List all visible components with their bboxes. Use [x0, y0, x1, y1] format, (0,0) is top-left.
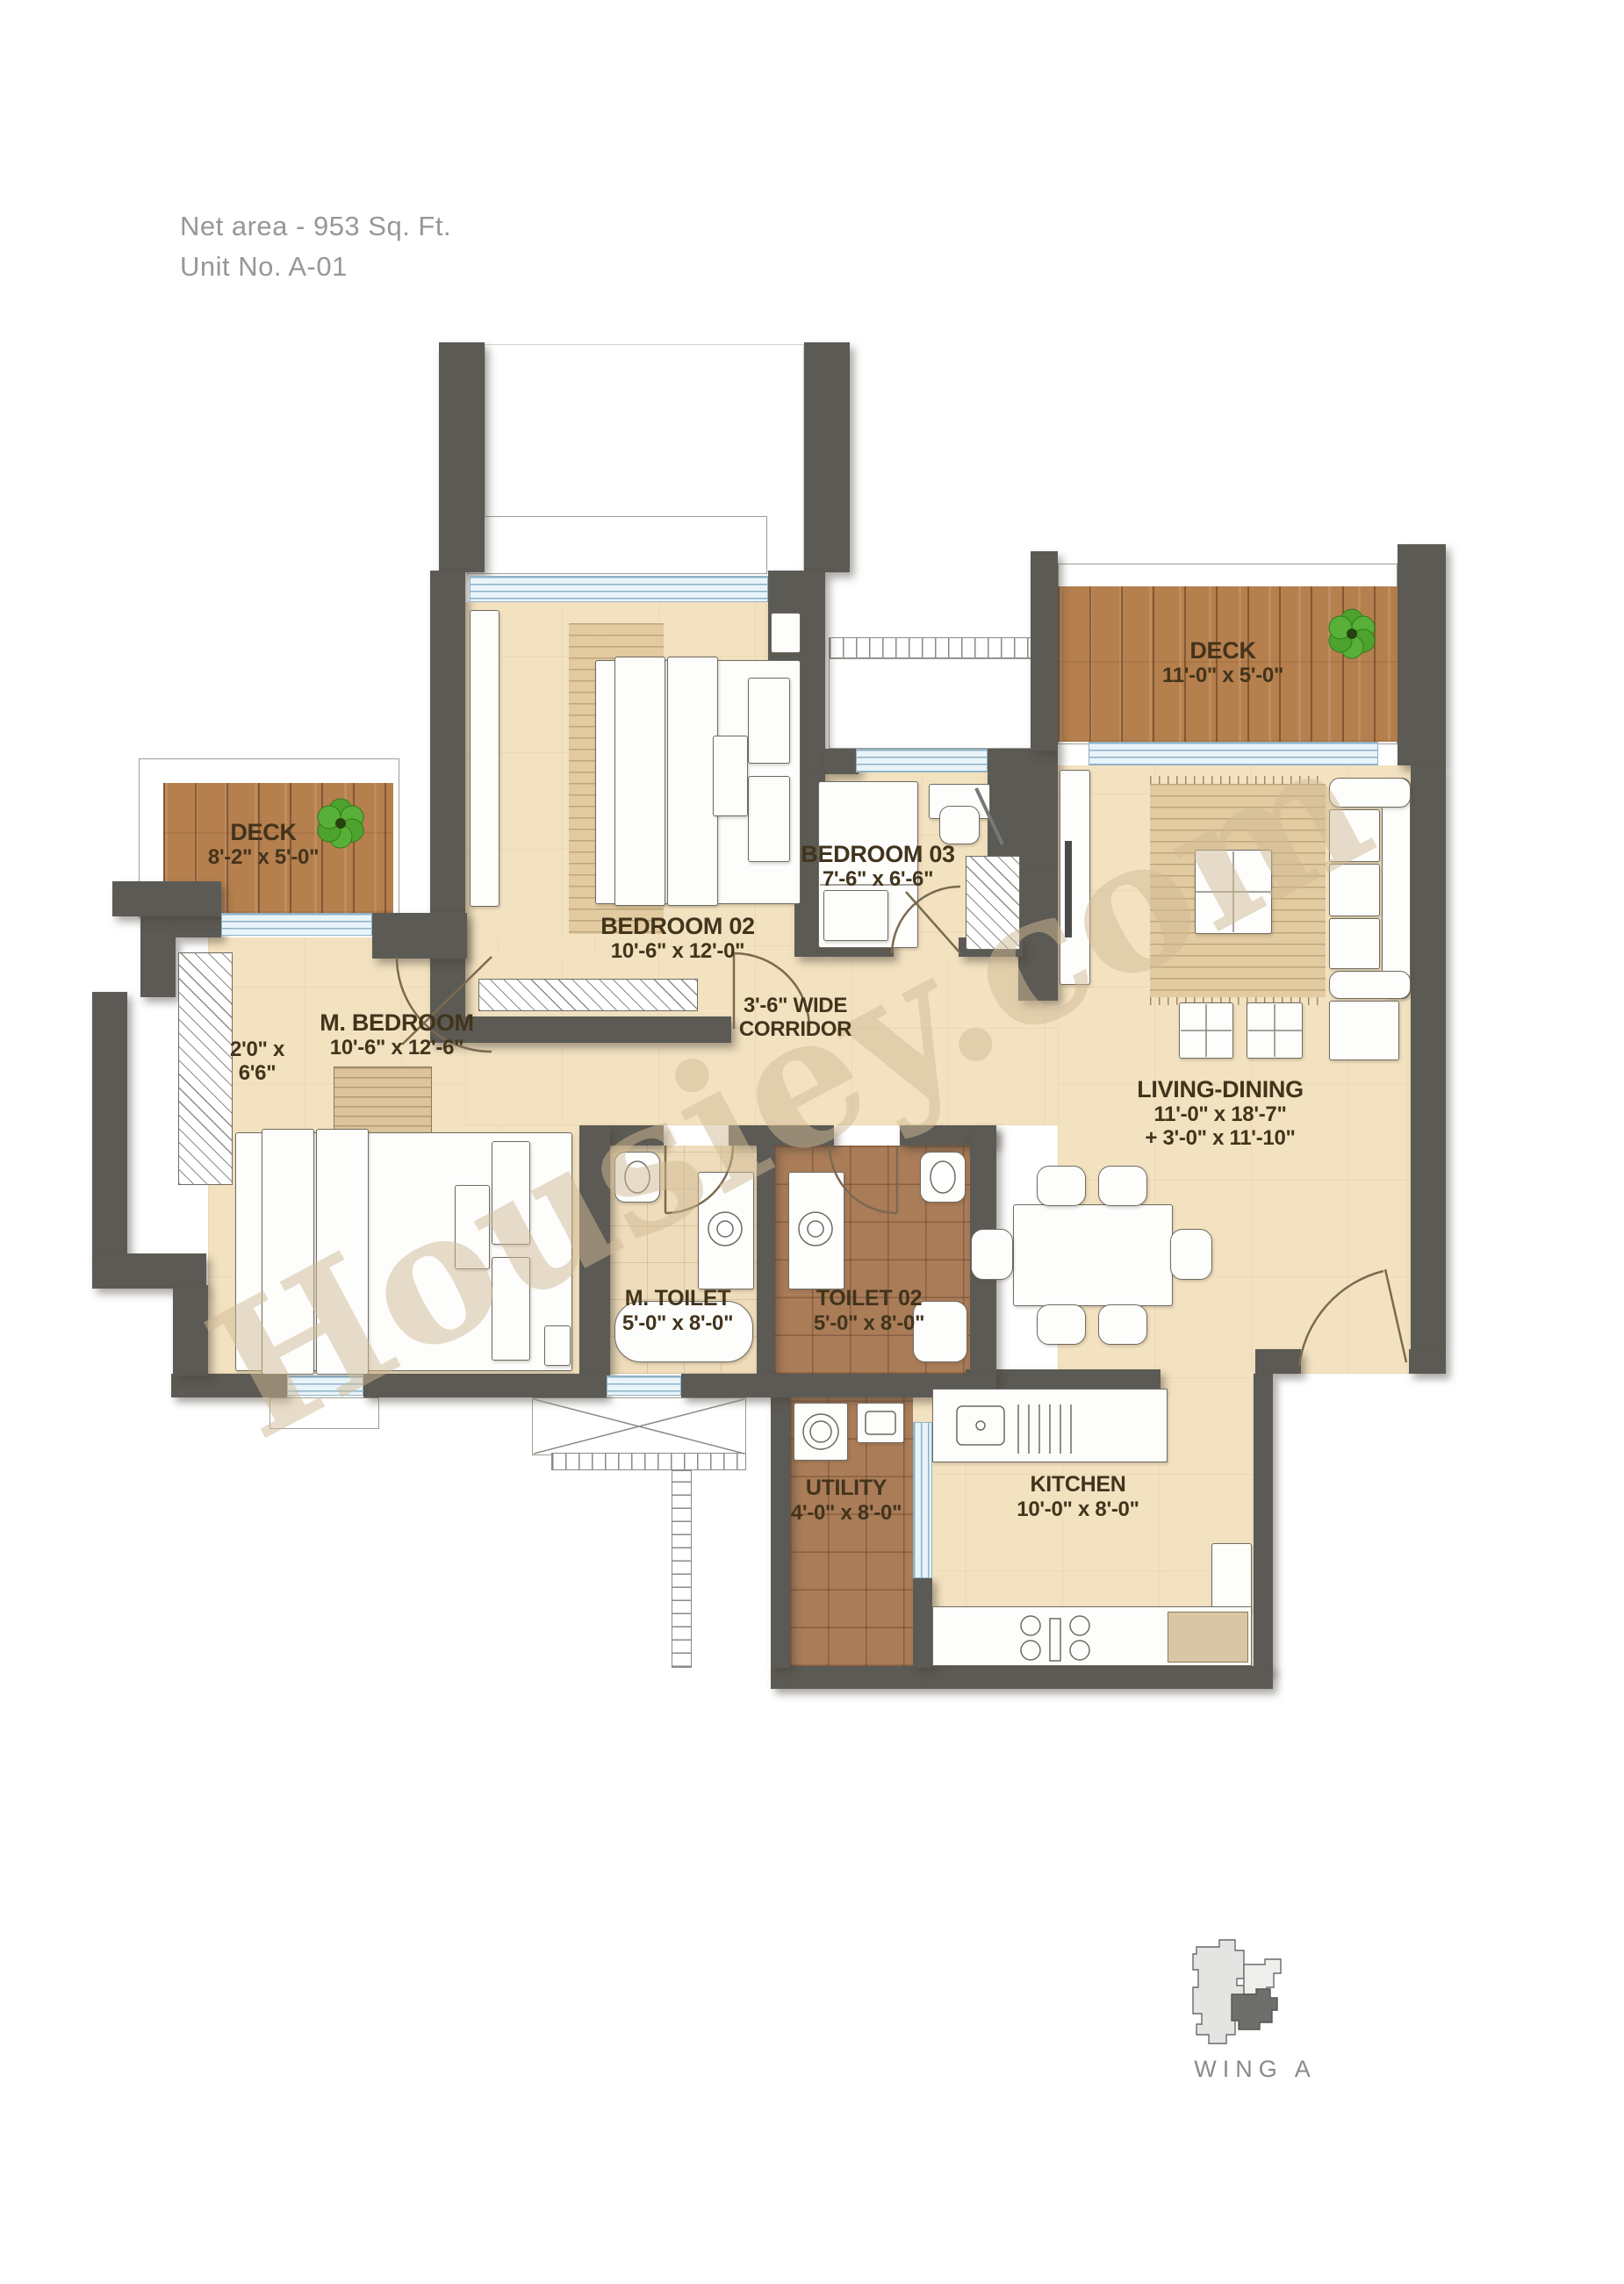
room-name: BEDROOM 02: [600, 913, 755, 939]
room-dims: + 3'-0" x 11'-10": [1137, 1126, 1304, 1150]
room-name: LIVING-DINING: [1137, 1076, 1304, 1102]
room-dims: 5'-0" x 8'-0": [814, 1311, 924, 1335]
wall-segment: [92, 992, 127, 1257]
bedroom-03-ledge: [829, 658, 1034, 749]
dining-chair: [971, 1229, 1013, 1280]
room-dims: 5'-0" x 8'-0": [622, 1311, 733, 1335]
room-label-toilet-02: TOILET 02 5'-0" x 8'-0": [814, 1285, 924, 1335]
wall-segment: [439, 342, 485, 572]
pillow: [455, 1185, 490, 1269]
wall-segment: [176, 913, 221, 937]
kitchen-counter: [932, 1389, 1168, 1462]
service-ticks-v: [672, 1470, 692, 1668]
room-label-master-toilet: M. TOILET 5'-0" x 8'-0": [622, 1285, 733, 1335]
wall-segment: [1409, 1349, 1446, 1374]
wall-segment: [173, 1285, 208, 1375]
wall-segment: [140, 913, 176, 997]
basin-counter: [698, 1172, 754, 1289]
room-dims: 10'-6" x 12'-6": [320, 1036, 474, 1059]
wall-segment: [606, 1125, 664, 1146]
sofa-cushion: [1329, 809, 1380, 862]
basin-counter: [788, 1172, 844, 1289]
kitchen-platform: [1168, 1612, 1248, 1663]
window-master-bedroom: [221, 913, 372, 936]
wall-segment: [579, 1125, 610, 1375]
wall-segment: [430, 571, 465, 1043]
switchboard: [544, 1325, 571, 1366]
niche-dims-line1: 2'0" x: [230, 1038, 284, 1061]
side-table: [1329, 1001, 1399, 1060]
pouf: [1179, 1002, 1233, 1059]
room-label-master-bedroom: M. BEDROOM 10'-6" x 12'-6": [320, 1009, 474, 1059]
label-niche-dims: 2'0" x 6'6": [230, 1038, 284, 1085]
switchboard: [771, 613, 801, 653]
wall-segment: [171, 1374, 287, 1397]
pillow: [492, 1141, 530, 1245]
unit-no-text: Unit No. A-01: [180, 251, 348, 283]
wall-segment: [1411, 765, 1446, 1349]
washing-machine: [794, 1403, 848, 1461]
room-dims: 10'-6" x 12'-0": [600, 939, 755, 963]
wall-segment: [1398, 544, 1446, 765]
keyplan-tower: [1193, 1940, 1244, 2043]
wardrobe: [470, 610, 499, 907]
wall-segment: [465, 1016, 731, 1043]
sofa-cushion: [1329, 864, 1380, 916]
tv-icon: [1065, 841, 1072, 937]
duvet: [667, 657, 718, 906]
service-ledge: [532, 1397, 746, 1455]
wc: [920, 1152, 966, 1203]
floorplan-page: Net area - 953 Sq. Ft. Unit No. A-01: [0, 0, 1624, 2284]
room-name: M. BEDROOM: [320, 1009, 474, 1036]
room-name: TOILET 02: [814, 1285, 924, 1311]
corridor-line1: 3'-6" WIDE: [739, 994, 852, 1017]
pillow: [713, 736, 748, 816]
duvet: [316, 1129, 369, 1375]
wall-segment: [1018, 871, 1058, 1001]
wall-segment: [757, 1146, 774, 1375]
window-bedroom-02: [470, 576, 768, 602]
room-dims: 11'-0" x 5'-0": [1162, 664, 1283, 687]
dining-chair: [1098, 1166, 1147, 1206]
planter-box: [269, 1397, 379, 1429]
keyplan-unit-highlight: [1232, 1989, 1277, 2029]
pillow: [492, 1257, 530, 1361]
room-label-deck-right: DECK 11'-0" x 5'-0": [1162, 637, 1283, 687]
dining-table: [1013, 1204, 1173, 1306]
pillow: [823, 890, 888, 941]
room-label-living-dining: LIVING-DINING 11'-0" x 18'-7" + 3'-0" x …: [1137, 1076, 1304, 1150]
wall-segment: [825, 749, 859, 774]
bedroom-02-ledge: [467, 516, 767, 574]
wall-segment: [913, 1577, 932, 1668]
keyplan-icon: [1182, 1936, 1283, 2049]
wall-segment: [771, 1666, 1273, 1689]
wall-segment: [363, 1374, 607, 1397]
room-label-kitchen: KITCHEN 10'-0" x 8'-0": [1017, 1471, 1139, 1521]
wall-segment: [771, 1396, 790, 1668]
sofa-cushion: [1329, 918, 1380, 969]
sofa-armrest: [1329, 971, 1411, 999]
room-name: KITCHEN: [1017, 1471, 1139, 1498]
window-bedroom-03: [856, 749, 988, 772]
room-dims: 7'-6" x 6'-6": [801, 867, 955, 891]
wall-segment: [804, 342, 850, 572]
wall-segment: [1254, 1374, 1273, 1672]
room-name: DECK: [1162, 637, 1283, 664]
sofa-armrest: [1329, 778, 1411, 808]
wall-segment: [1031, 551, 1058, 751]
dining-chair: [1037, 1304, 1086, 1345]
room-dims: 11'-0" x 18'-7": [1137, 1102, 1304, 1126]
dining-chair: [1170, 1229, 1212, 1280]
glass-door-utility: [913, 1422, 932, 1578]
room-dims: 8'-2" x 5'-0": [208, 845, 319, 869]
label-corridor: 3'-6" WIDE CORRIDOR: [739, 994, 852, 1041]
chair: [939, 806, 980, 844]
wall-segment: [988, 749, 1058, 871]
pouf: [1247, 1002, 1303, 1059]
room-dims: 4'-0" x 8'-0": [791, 1501, 902, 1525]
room-name: BEDROOM 03: [801, 841, 955, 867]
wardrobe-niche: [178, 952, 233, 1185]
wing-label: WING A: [1168, 2056, 1343, 2083]
fridge: [1211, 1543, 1252, 1613]
room-dims: 10'-0" x 8'-0": [1017, 1498, 1139, 1521]
room-name: M. TOILET: [622, 1285, 733, 1311]
window-master-toilet: [607, 1375, 681, 1396]
pillow: [748, 776, 790, 862]
room-label-utility: UTILITY 4'-0" x 8'-0": [791, 1475, 902, 1525]
keyplan-wing: [1244, 1959, 1281, 1994]
window-living: [1089, 742, 1378, 765]
service-ticks-h: [551, 1453, 746, 1470]
room-name: UTILITY: [791, 1475, 902, 1501]
net-area-text: Net area - 953 Sq. Ft.: [180, 211, 451, 242]
wall-segment: [372, 913, 467, 959]
room-name: DECK: [208, 819, 319, 845]
utility-sink: [857, 1403, 904, 1443]
wardrobe-sliding: [478, 979, 698, 1011]
wall-segment: [112, 881, 221, 916]
room-label-deck-left: DECK 8'-2" x 5'-0": [208, 819, 319, 869]
room-label-bedroom-02: BEDROOM 02 10'-6" x 12'-0": [600, 913, 755, 963]
dining-chair: [1098, 1304, 1147, 1345]
wall-segment: [92, 1253, 206, 1289]
niche-dims-line2: 6'6": [230, 1061, 284, 1085]
wall-segment: [729, 1125, 834, 1146]
room-label-bedroom-03: BEDROOM 03 7'-6" x 6'-6": [801, 841, 955, 891]
duvet: [614, 657, 665, 906]
wall-segment: [1255, 1349, 1301, 1374]
rug-fringe: [1150, 776, 1326, 784]
corridor-line2: CORRIDOR: [739, 1017, 852, 1041]
window-master-bedroom-2: [287, 1375, 363, 1396]
ledge-ticks-top: [829, 637, 1034, 658]
pillow: [748, 678, 790, 764]
duvet: [262, 1129, 314, 1375]
sofa-back: [1382, 778, 1411, 999]
dining-chair: [1037, 1166, 1086, 1206]
coffee-table: [1195, 850, 1272, 934]
wc: [614, 1152, 660, 1203]
closet: [966, 856, 1020, 950]
